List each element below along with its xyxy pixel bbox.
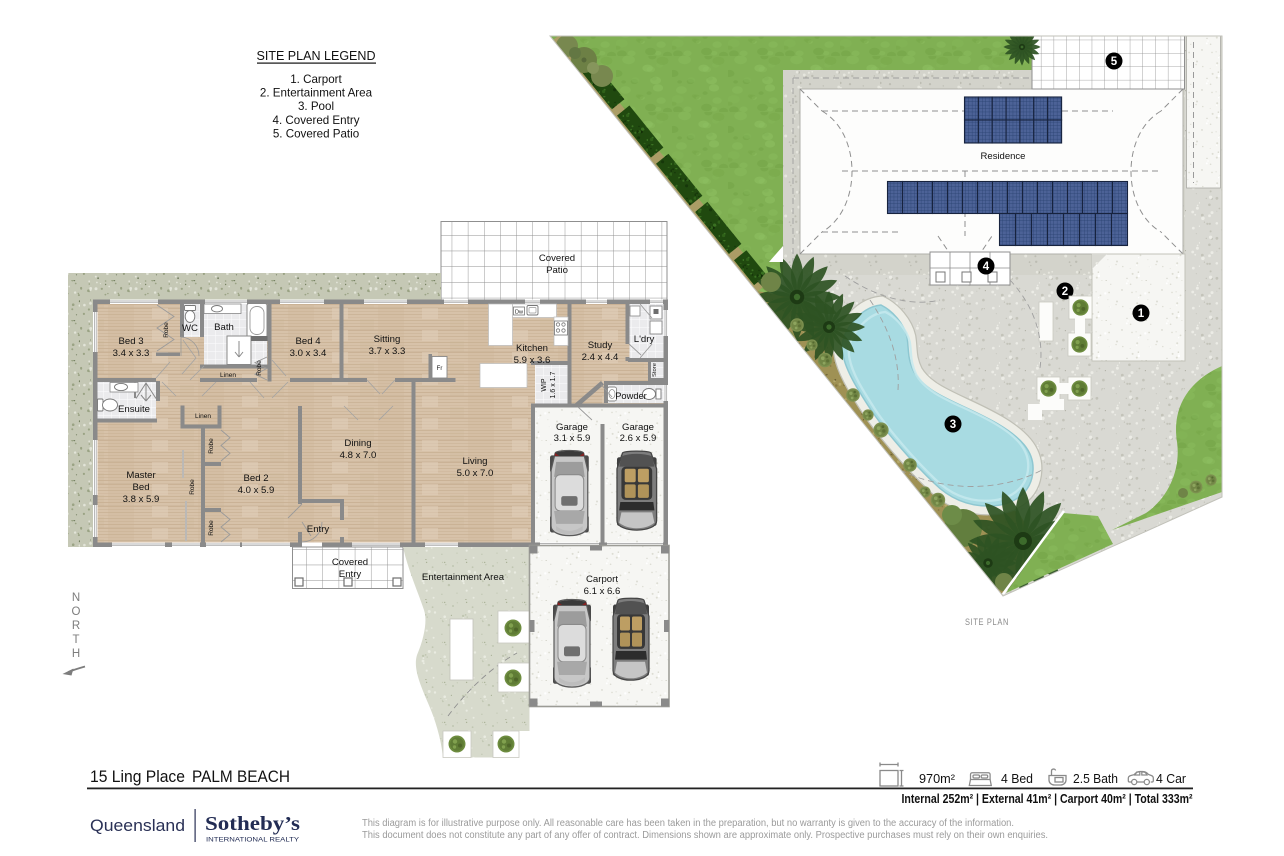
- svg-text:Bed 4: Bed 4: [295, 336, 321, 347]
- svg-text:Robe: Robe: [208, 438, 215, 454]
- svg-text:This document does not constit: This document does not constitute any pa…: [362, 830, 1048, 841]
- svg-text:Entertainment Area: Entertainment Area: [422, 572, 505, 583]
- svg-text:4: 4: [983, 261, 990, 273]
- svg-text:Patio: Patio: [546, 265, 568, 276]
- svg-text:Sotheby’s: Sotheby’s: [205, 813, 300, 835]
- svg-text:3.1 x 5.9: 3.1 x 5.9: [554, 433, 591, 444]
- svg-text:2.4 x 4.4: 2.4 x 4.4: [582, 352, 619, 363]
- svg-text:Dining: Dining: [344, 438, 371, 449]
- svg-text:6.1 x 6.6: 6.1 x 6.6: [584, 586, 621, 597]
- svg-text:Carport: Carport: [586, 574, 618, 585]
- svg-text:Kitchen: Kitchen: [516, 343, 548, 354]
- svg-text:4.0 x 5.9: 4.0 x 5.9: [238, 485, 275, 496]
- svg-text:O: O: [72, 606, 81, 618]
- svg-text:SITE PLAN: SITE PLAN: [965, 617, 1009, 627]
- svg-text:INTERNATIONAL REALTY: INTERNATIONAL REALTY: [206, 837, 300, 844]
- svg-text:5.0 x 7.0: 5.0 x 7.0: [457, 468, 494, 479]
- svg-text:This diagram is for illustrati: This diagram is for illustrative purpose…: [362, 818, 1014, 829]
- svg-text:Dw: Dw: [515, 310, 523, 316]
- svg-text:970m²: 970m²: [919, 771, 956, 786]
- svg-text:2.6 x 5.9: 2.6 x 5.9: [620, 433, 657, 444]
- svg-text:3.4 x 3.3: 3.4 x 3.3: [113, 348, 150, 359]
- svg-text:2.5 Bath: 2.5 Bath: [1073, 771, 1118, 786]
- svg-text:R: R: [72, 620, 80, 632]
- svg-text:4.8 x 7.0: 4.8 x 7.0: [340, 450, 377, 461]
- svg-text:T: T: [72, 634, 79, 646]
- svg-text:Residence: Residence: [981, 151, 1026, 162]
- svg-text:Ensuite: Ensuite: [118, 404, 150, 415]
- svg-text:15 Ling Place: 15 Ling Place: [90, 768, 185, 786]
- svg-text:Bed: Bed: [132, 482, 149, 493]
- svg-text:5. Covered Patio: 5. Covered Patio: [273, 127, 359, 140]
- svg-text:Robe: Robe: [163, 322, 170, 338]
- svg-text:Robe: Robe: [208, 520, 215, 536]
- svg-text:Robe: Robe: [189, 479, 196, 495]
- svg-text:H: H: [72, 648, 80, 660]
- svg-text:2: 2: [1062, 286, 1068, 298]
- svg-text:Garage: Garage: [622, 422, 654, 433]
- svg-text:Linen: Linen: [220, 372, 236, 379]
- svg-text:3.7 x 3.3: 3.7 x 3.3: [369, 346, 406, 357]
- svg-text:SITE PLAN LEGEND: SITE PLAN LEGEND: [257, 48, 376, 63]
- svg-text:Fr: Fr: [437, 366, 443, 372]
- svg-text:Bed 3: Bed 3: [118, 336, 143, 347]
- svg-text:Queensland: Queensland: [90, 816, 185, 835]
- svg-text:1. Carport: 1. Carport: [290, 73, 342, 86]
- svg-text:3.8 x 5.9: 3.8 x 5.9: [123, 494, 160, 505]
- svg-text:2. Entertainment Area: 2. Entertainment Area: [260, 87, 373, 100]
- svg-text:4. Covered Entry: 4. Covered Entry: [273, 114, 360, 127]
- svg-text:1: 1: [1138, 308, 1145, 320]
- svg-text:Powder: Powder: [615, 391, 647, 401]
- svg-text:4 Bed: 4 Bed: [1001, 771, 1033, 786]
- svg-text:WIP: WIP: [541, 378, 548, 392]
- svg-text:Entry: Entry: [307, 524, 330, 535]
- svg-text:N: N: [72, 592, 80, 604]
- svg-text:Study: Study: [588, 340, 613, 351]
- svg-text:WC: WC: [182, 323, 198, 334]
- svg-text:Covered: Covered: [539, 253, 575, 264]
- svg-text:3: 3: [950, 419, 956, 431]
- svg-text:5: 5: [1111, 56, 1118, 68]
- svg-text:Entry: Entry: [339, 569, 362, 580]
- svg-text:4 Car: 4 Car: [1156, 771, 1187, 786]
- svg-text:PALM BEACH: PALM BEACH: [192, 768, 290, 786]
- svg-text:Internal 252m² | External 41m²: Internal 252m² | External 41m² | Carport…: [902, 792, 1193, 806]
- svg-text:5.9 x 3.6: 5.9 x 3.6: [514, 355, 551, 366]
- svg-text:Covered: Covered: [332, 557, 368, 568]
- svg-text:Sitting: Sitting: [374, 334, 401, 345]
- svg-text:Bath: Bath: [214, 322, 234, 333]
- svg-text:L'dry: L'dry: [634, 334, 655, 345]
- svg-text:3. Pool: 3. Pool: [298, 100, 334, 113]
- svg-text:Bed 2: Bed 2: [243, 473, 268, 484]
- svg-text:Robe: Robe: [256, 360, 263, 376]
- svg-text:Garage: Garage: [556, 422, 588, 433]
- svg-text:3.0 x 3.4: 3.0 x 3.4: [290, 348, 327, 359]
- svg-text:Master: Master: [126, 470, 156, 481]
- svg-text:Living: Living: [462, 456, 487, 467]
- svg-text:Store: Store: [652, 363, 658, 377]
- svg-text:Linen: Linen: [195, 413, 211, 420]
- svg-text:1.6 x 1.7: 1.6 x 1.7: [550, 371, 557, 398]
